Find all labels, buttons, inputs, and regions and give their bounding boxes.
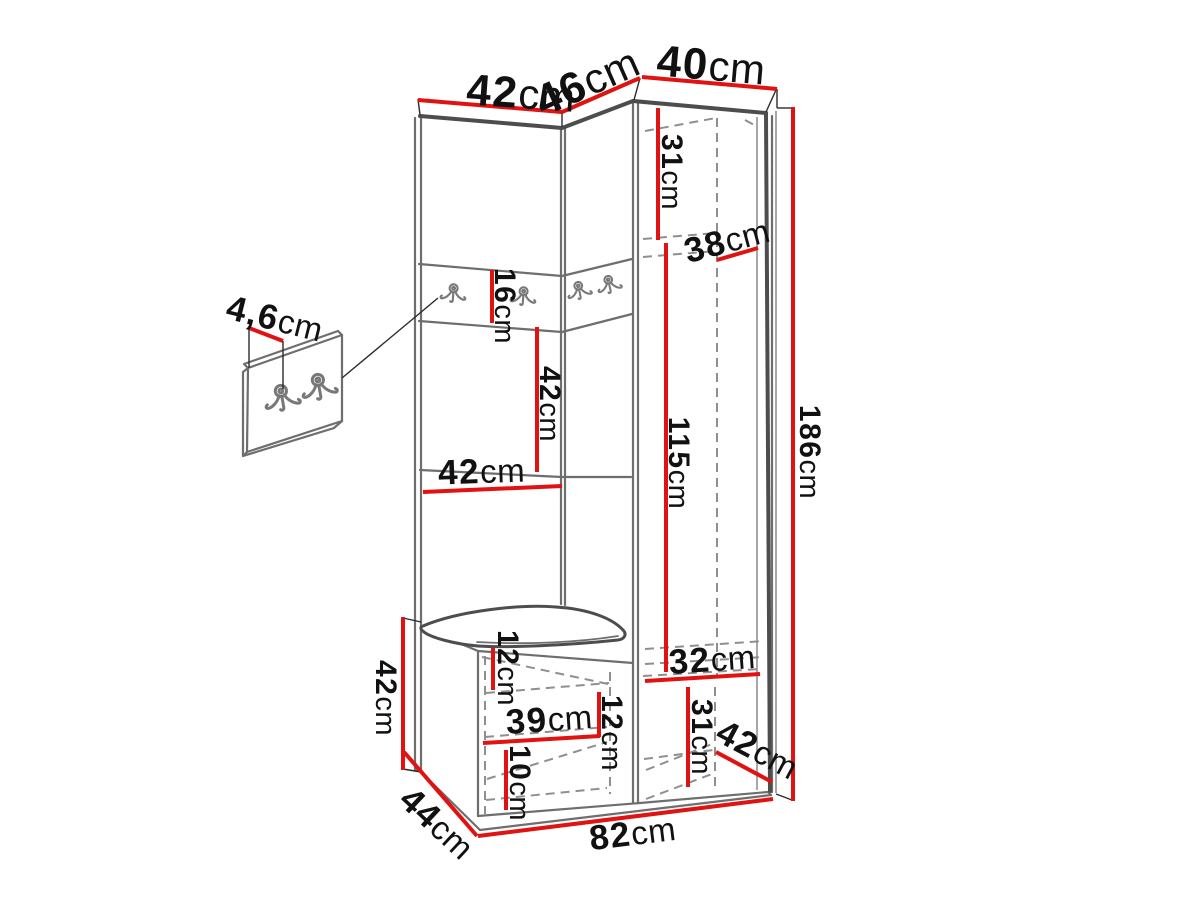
dim-label-hanging-height: 115cm — [662, 417, 695, 510]
dim-value: 40 — [655, 36, 711, 89]
dim-label-shoe-lower-height: 10cm — [503, 745, 536, 821]
dim-label-seat-clearance: 12cm — [491, 630, 524, 706]
dim-value: 10 — [503, 745, 536, 781]
furniture-dimension-diagram: 42cm 46cm 40cm 31cm 38cm 186cm 115cm 16c… — [0, 0, 1200, 899]
dim-value: 12 — [491, 630, 524, 666]
coat-hook-icon — [440, 283, 466, 302]
wardrobe-drawing: 42cm 46cm 40cm 31cm 38cm 186cm 115cm 16c… — [0, 0, 1200, 899]
dim-unit: cm — [491, 666, 523, 706]
ext-top-right-corner — [766, 90, 776, 112]
dim-unit: cm — [546, 698, 593, 738]
door-top-edge — [745, 120, 758, 127]
dim-unit: cm — [709, 638, 756, 678]
dim-unit: cm — [707, 42, 768, 94]
dim-label-hook-board-thickness: 4,6cm — [222, 288, 327, 350]
ext-total-height-bottom — [776, 794, 792, 800]
dim-unit: cm — [662, 470, 694, 510]
dim-unit: cm — [503, 781, 535, 821]
dim-label-top-corner-width: 46cm — [527, 37, 646, 126]
dim-value: 31 — [655, 134, 688, 170]
dim-unit: cm — [488, 304, 520, 344]
dim-value: 42 — [369, 660, 402, 696]
dim-label-open-mid-height: 42cm — [533, 366, 566, 442]
dim-value: 42 — [533, 366, 566, 402]
dim-label-bottom-right-width: 32cm — [667, 637, 756, 682]
dim-label-interior-depth: 38cm — [680, 211, 774, 271]
dim-label-bottom-right-height: 31cm — [685, 699, 718, 775]
dim-label-bench-height: 42cm — [369, 660, 402, 736]
dim-value: 186 — [793, 405, 826, 460]
dim-label-shoe-shelf-width: 39cm — [504, 697, 593, 742]
coat-hook-icon — [566, 280, 593, 302]
hook-band-top-corner — [562, 259, 632, 276]
dim-value: 39 — [504, 700, 549, 742]
dim-unit: cm — [595, 731, 627, 771]
dim-value: 32 — [667, 640, 712, 682]
dimension-labels: 42cm 46cm 40cm 31cm 38cm 186cm 115cm 16c… — [222, 36, 826, 867]
dim-unit: cm — [793, 459, 825, 499]
dim-label-top-right-width: 40cm — [655, 36, 768, 94]
bottom-cabinet-depth-edge-2 — [646, 774, 712, 799]
dim-value: 4,6 — [222, 288, 283, 339]
dim-label-hook-panel-height: 16cm — [488, 268, 521, 344]
hook-board-front-face — [247, 335, 342, 452]
dim-value: 31 — [685, 699, 718, 735]
wardrobe-interior-top-edge — [645, 118, 716, 131]
cabinet-right-front-edge — [766, 113, 770, 791]
dim-value: 12 — [595, 695, 628, 731]
dim-value: 16 — [488, 268, 521, 304]
dim-label-upper-shelf-height: 31cm — [655, 134, 688, 210]
dim-value: 42 — [437, 452, 480, 492]
detail-leader-line — [342, 298, 438, 378]
coat-hook-icon — [596, 274, 623, 296]
dim-unit: cm — [369, 696, 401, 736]
hook-band-bottom-corner — [562, 314, 632, 332]
dim-unit: cm — [655, 170, 687, 210]
dim-label-shoe-upper-height: 12cm — [595, 695, 628, 771]
dim-value: 42 — [465, 65, 520, 118]
dim-value: 82 — [587, 814, 633, 858]
hook-board-detail — [243, 331, 342, 456]
dim-label-total-height: 186cm — [793, 405, 826, 499]
dim-unit: cm — [479, 452, 525, 491]
dim-value: 115 — [662, 417, 695, 470]
dim-unit: cm — [629, 810, 678, 852]
dim-unit: cm — [533, 402, 565, 442]
dim-label-open-mid-width: 42cm — [437, 451, 525, 493]
ext-bench-height-top — [403, 618, 421, 622]
